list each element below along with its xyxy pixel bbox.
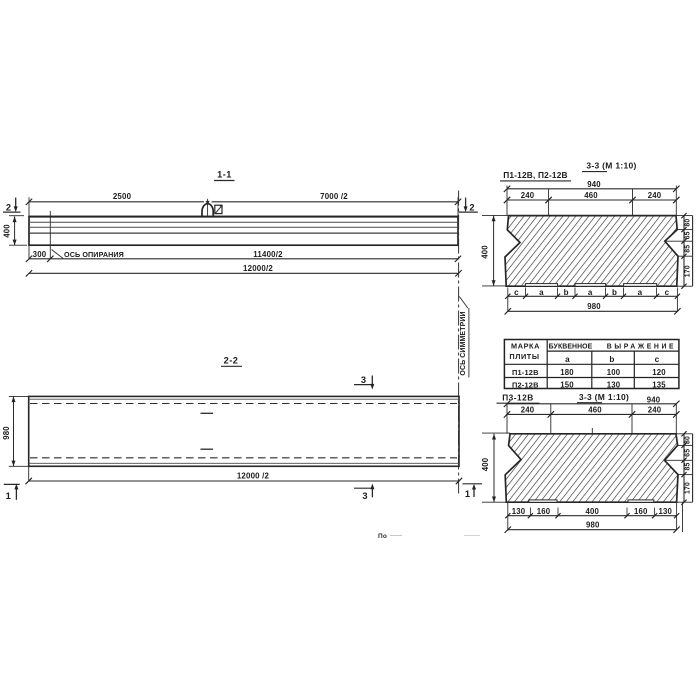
svg-text:130: 130 [658,507,672,516]
svg-text:ПЛИТЫ: ПЛИТЫ [509,352,539,361]
svg-text:400: 400 [585,507,599,516]
svg-text:3-3 (М 1:10): 3-3 (М 1:10) [586,161,636,171]
svg-text:400: 400 [3,224,12,238]
svg-text:12000/2: 12000/2 [243,264,273,273]
svg-text:3: 3 [362,491,367,501]
svg-text:460: 460 [584,191,598,200]
svg-text:b: b [609,355,614,364]
svg-text:170: 170 [685,265,692,277]
svg-text:80: 80 [685,219,692,227]
svg-text:11400/2: 11400/2 [253,250,283,259]
svg-text:3-3 (М 1:10): 3-3 (М 1:10) [579,392,629,402]
svg-text:120: 120 [652,368,666,377]
svg-text:а: а [565,355,570,364]
svg-text:3: 3 [361,375,366,385]
svg-text:2-2: 2-2 [224,356,239,366]
svg-text:1: 1 [465,489,470,499]
svg-text:ВЫРАЖЕНИЕ: ВЫРАЖЕНИЕ [607,343,676,350]
svg-text:940: 940 [587,180,601,189]
svg-text:2500: 2500 [113,192,132,201]
svg-text:100: 100 [607,368,621,377]
svg-text:980: 980 [587,302,601,311]
svg-text:П1-12В, П2-12В: П1-12В, П2-12В [503,170,568,180]
svg-text:240: 240 [521,191,535,200]
svg-text:c: c [514,288,519,297]
svg-text:2: 2 [469,203,474,213]
svg-text:1-1: 1-1 [217,170,232,180]
svg-text:65: 65 [685,449,692,457]
svg-text:П2-12В: П2-12В [512,380,539,389]
svg-text:460: 460 [588,406,602,415]
svg-text:85: 85 [685,462,692,470]
svg-text:12000 /2: 12000 /2 [237,472,270,481]
svg-text:a: a [539,288,544,297]
svg-text:По: По [378,533,387,540]
svg-text:130: 130 [607,380,621,389]
svg-text:a: a [588,288,593,297]
svg-text:160: 160 [634,507,648,516]
svg-text:a: a [638,288,643,297]
svg-text:160: 160 [537,507,551,516]
svg-text:240: 240 [648,191,662,200]
svg-text:135: 135 [652,380,666,389]
svg-text:80: 80 [685,436,692,444]
svg-text:БУКВЕННОЕ: БУКВЕННОЕ [549,343,593,350]
svg-text:c: c [655,355,660,364]
svg-text:65: 65 [685,231,692,239]
svg-text:2: 2 [6,203,11,213]
svg-text:85: 85 [685,245,692,253]
svg-text:b: b [564,288,569,297]
svg-text:c: c [665,288,670,297]
svg-text:170: 170 [685,482,692,494]
svg-text:ОСЬ СИММЕТРИИ: ОСЬ СИММЕТРИИ [460,311,467,375]
svg-text:b: b [612,288,617,297]
svg-text:150: 150 [560,380,574,389]
svg-text:180: 180 [560,368,574,377]
svg-text:130: 130 [512,507,526,516]
svg-text:240: 240 [521,406,535,415]
svg-text:1: 1 [6,491,11,501]
svg-text:400: 400 [481,457,490,471]
svg-text:400: 400 [481,245,490,259]
svg-text:П3-12В: П3-12В [502,393,534,403]
svg-text:7000 /2: 7000 /2 [320,192,348,201]
svg-text:ОСЬ ОПИРАНИЯ: ОСЬ ОПИРАНИЯ [64,250,124,259]
svg-text:980: 980 [586,521,600,530]
svg-text:300: 300 [33,250,47,259]
svg-text:940: 940 [647,395,661,404]
svg-text:МАРКА: МАРКА [511,341,540,350]
svg-text:П1-12В: П1-12В [512,368,539,377]
svg-text:980: 980 [2,426,11,440]
svg-text:240: 240 [648,406,662,415]
